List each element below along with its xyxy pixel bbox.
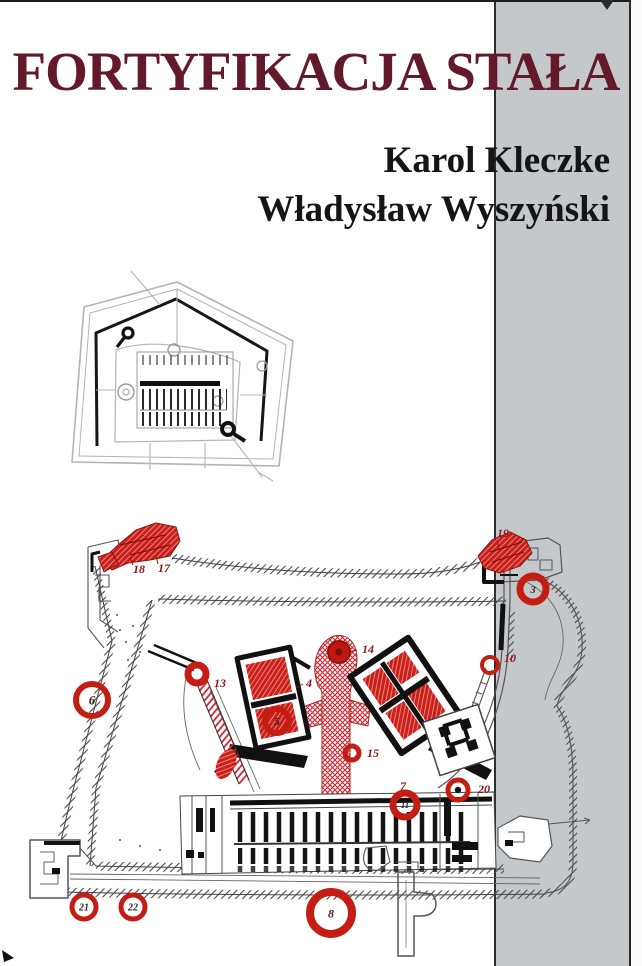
plan-marker [188,665,206,683]
svg-text:6: 6 [89,693,96,708]
large-fort-plan: 3658112122 181719144131015720 [2,523,590,962]
small-plan-comma-mark [222,423,234,435]
plan-marker-22: 22 [121,895,145,919]
plan-label-13: 13 [214,676,226,690]
svg-text:8: 8 [328,906,334,920]
plan-label-7: 7 [400,779,407,793]
plan-label-14: 14 [362,642,374,656]
plan-label-17: 17 [158,561,171,575]
small-plan-hook-mark [123,328,133,338]
plan-label-4: 4 [305,676,312,690]
plan-label-15: 15 [367,746,379,760]
plan-label-18: 18 [133,562,145,576]
svg-text:3: 3 [529,584,536,596]
plan-marker [345,746,359,760]
small-fort-plan [72,271,293,481]
book-cover: FORTYFIKACJA STAŁA Karol Kleczke Władysł… [0,0,642,966]
fortress-plans: 3658112122 181719144131015720 [0,0,642,966]
barracks-block [180,792,496,874]
plan-marker [482,657,498,673]
plan-label-19: 19 [497,526,509,540]
svg-text:21: 21 [78,903,89,914]
svg-text:22: 22 [127,903,138,914]
plan-label-20: 20 [477,782,490,796]
plan-marker-21: 21 [72,895,96,919]
svg-text:11: 11 [401,800,410,810]
corner-artifact [2,950,14,962]
black-wall-segment [501,604,503,650]
svg-text:5: 5 [274,716,280,728]
ne-works [478,532,562,582]
plan-label-10: 10 [504,651,516,665]
